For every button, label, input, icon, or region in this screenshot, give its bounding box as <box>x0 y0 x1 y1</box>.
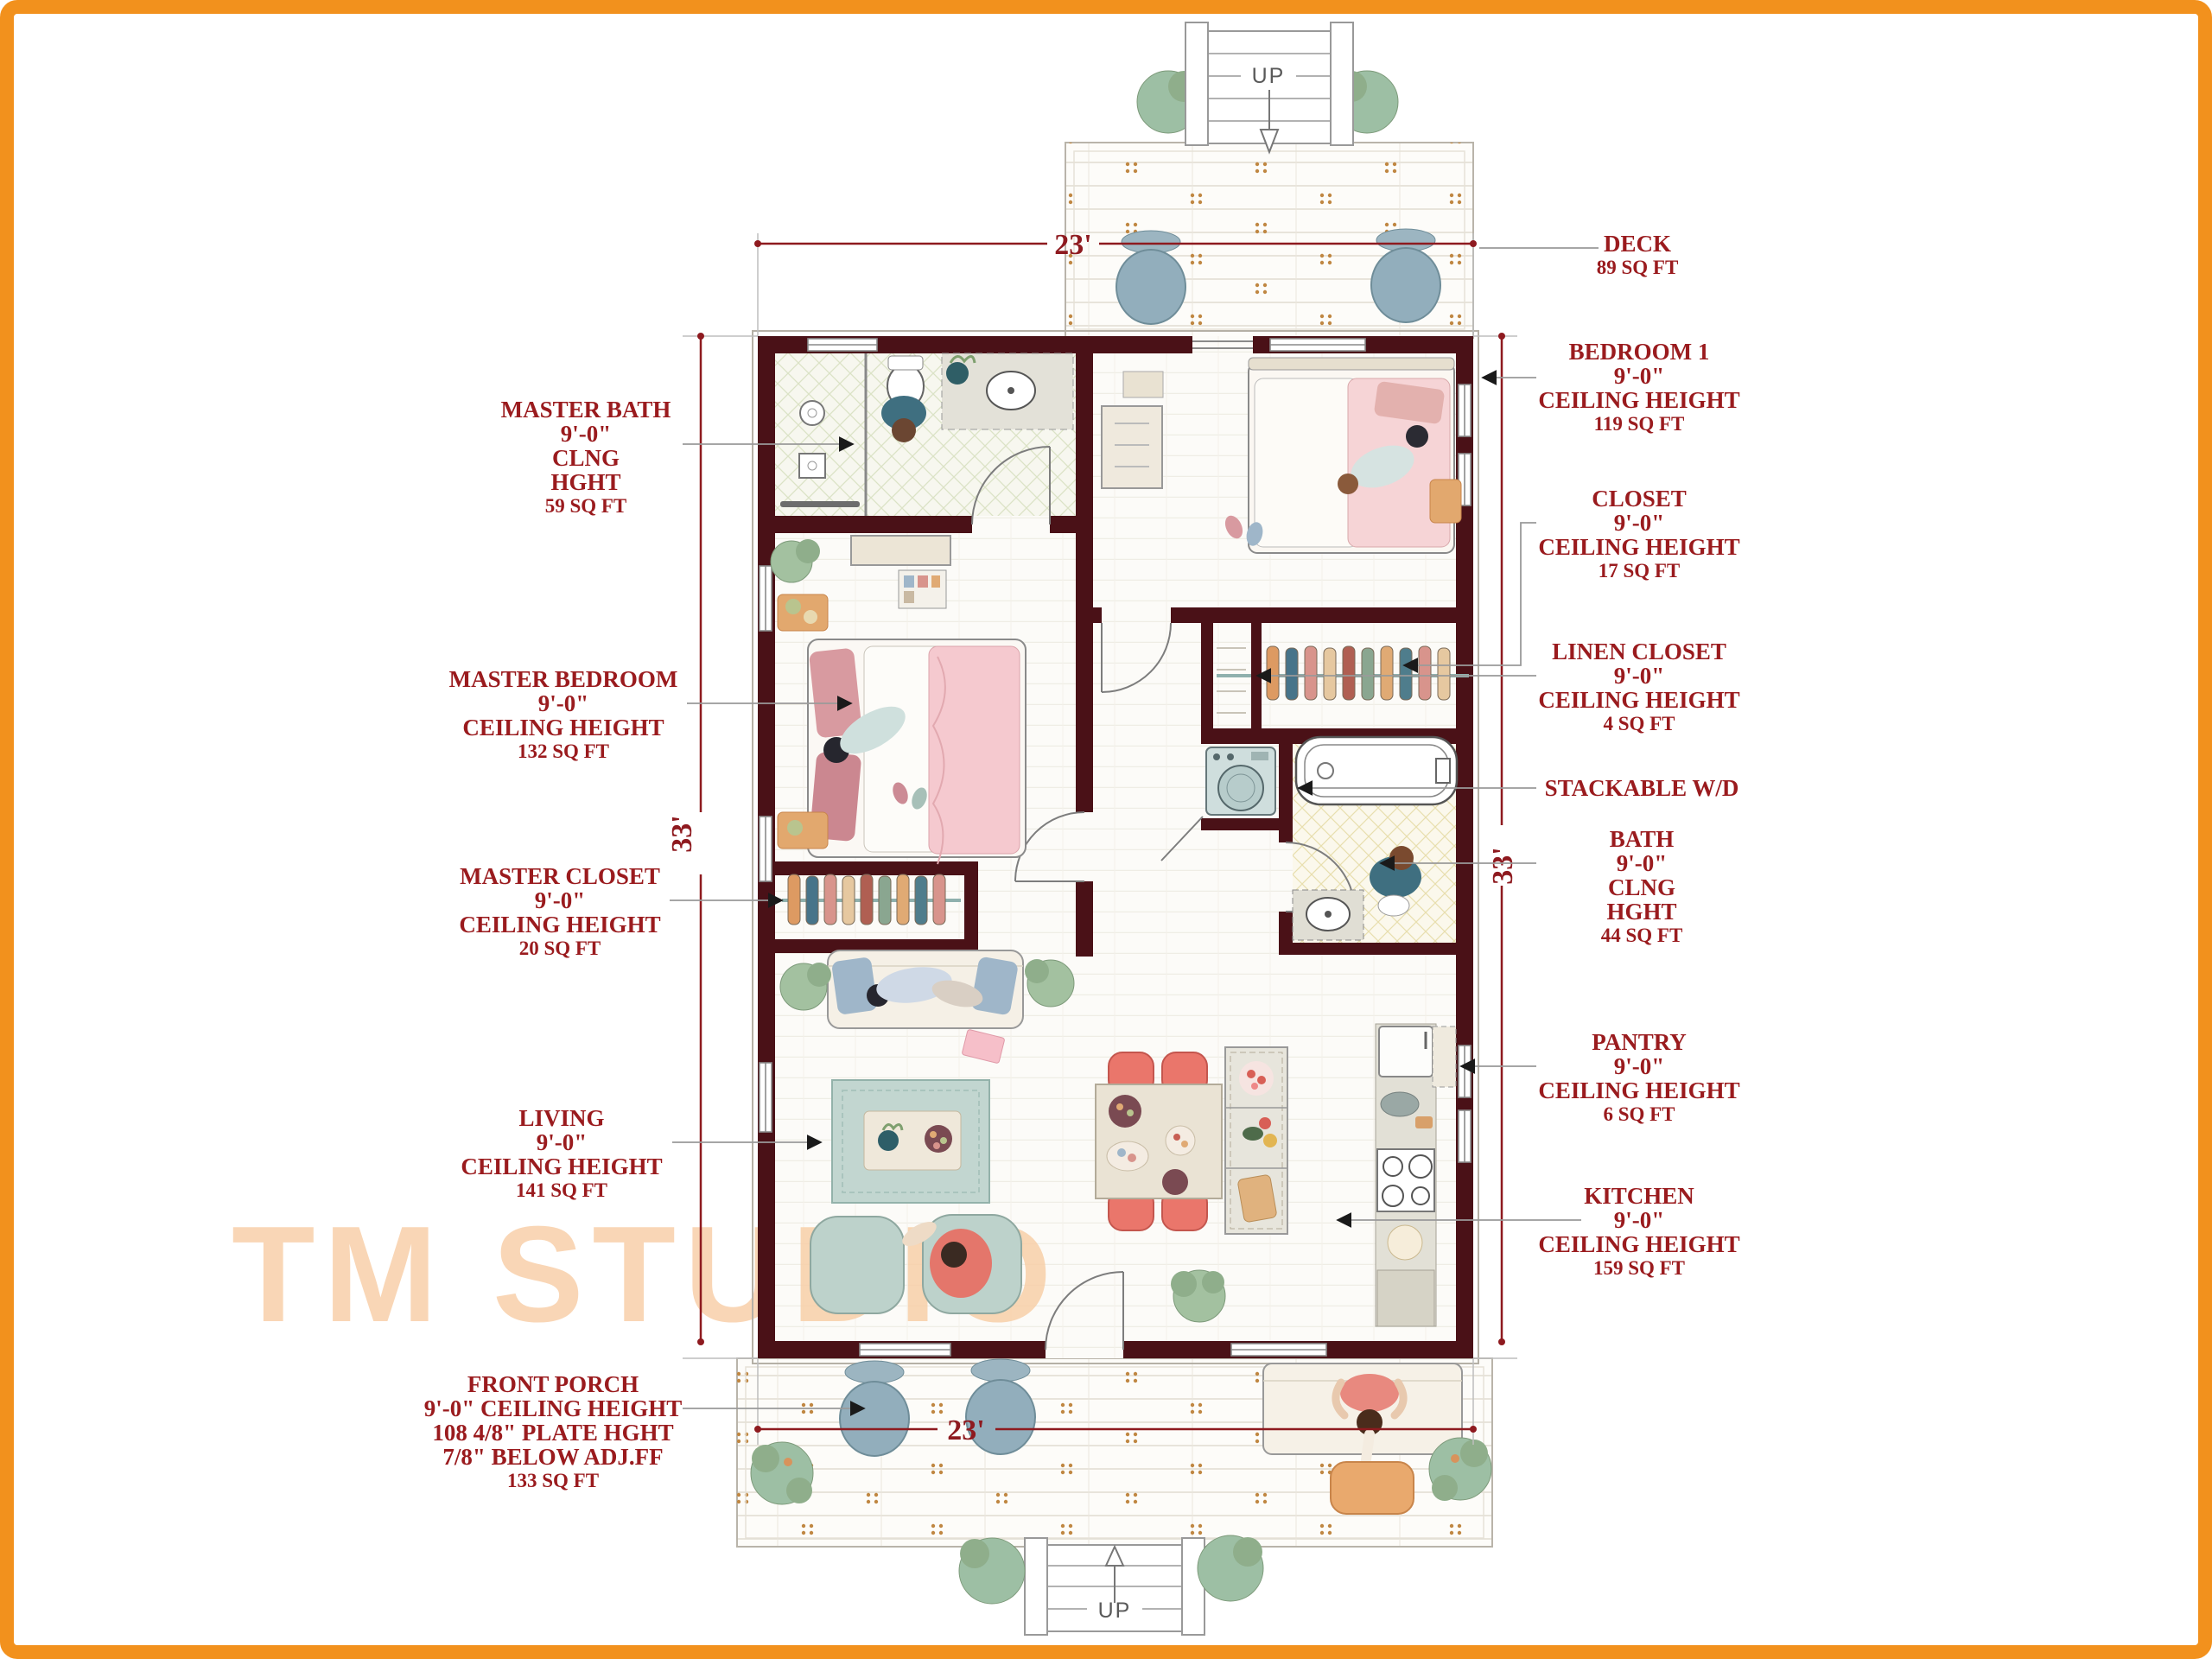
master-bath-fixtures <box>780 353 1073 516</box>
dimension-width-top: 23' <box>1054 229 1091 261</box>
dimension-width-bottom: 23' <box>947 1414 984 1446</box>
label-deck: DECK 89 SQ FT <box>1597 232 1679 280</box>
deck-area: 89 SQ FT <box>1597 256 1679 280</box>
label-master-bedroom: MASTER BEDROOM 9'-0" CEILING HEIGHT 132 … <box>449 667 678 764</box>
bottom-stairs: UP <box>959 1535 1263 1635</box>
bath-fixtures <box>1293 737 1457 940</box>
bottom-stairs-up-label: UP <box>1098 1599 1132 1623</box>
master-bedroom-furniture <box>771 536 1026 864</box>
living-furniture <box>780 950 1074 1313</box>
label-bedroom1: BEDROOM 1 9'-0" CEILING HEIGHT 119 SQ FT <box>1538 340 1739 436</box>
deck-name: DECK <box>1597 232 1679 256</box>
top-stairs: UP <box>1185 22 1353 152</box>
bedroom1-furniture <box>1102 358 1461 553</box>
label-living: LIVING 9'-0" CEILING HEIGHT 141 SQ FT <box>461 1106 662 1203</box>
label-front-porch: FRONT PORCH 9'-0" CEILING HEIGHT 108 4/8… <box>424 1372 683 1493</box>
floor-plan-canvas: TM STUDIO <box>0 0 2212 1659</box>
deck-door <box>1192 341 1253 348</box>
plan-layer: UP <box>0 0 2212 1659</box>
label-stackable-wd: STACKABLE W/D <box>1545 776 1739 800</box>
kitchen-furniture <box>1096 1024 1456 1326</box>
label-linen-closet: LINEN CLOSET 9'-0" CEILING HEIGHT 4 SQ F… <box>1538 639 1739 736</box>
dimension-height-right: 33' <box>1487 847 1519 884</box>
dimension-height-left: 33' <box>666 815 698 852</box>
label-master-bath: MASTER BATH 9'-0" CLNG HGHT 59 SQ FT <box>501 397 671 518</box>
label-closet: CLOSET 9'-0" CEILING HEIGHT 17 SQ FT <box>1538 486 1739 583</box>
label-bath: BATH 9'-0" CLNG HGHT 44 SQ FT <box>1601 827 1683 948</box>
label-pantry: PANTRY 9'-0" CEILING HEIGHT 6 SQ FT <box>1538 1030 1739 1127</box>
top-stairs-up-label: UP <box>1252 64 1286 88</box>
master-closet-clothes <box>782 874 961 925</box>
washer-dryer <box>1206 747 1275 815</box>
label-master-closet: MASTER CLOSET 9'-0" CEILING HEIGHT 20 SQ… <box>459 864 660 961</box>
label-kitchen: KITCHEN 9'-0" CEILING HEIGHT 159 SQ FT <box>1538 1184 1739 1281</box>
porch-furniture <box>751 1359 1491 1514</box>
pantry-cabinet <box>1433 1027 1456 1087</box>
